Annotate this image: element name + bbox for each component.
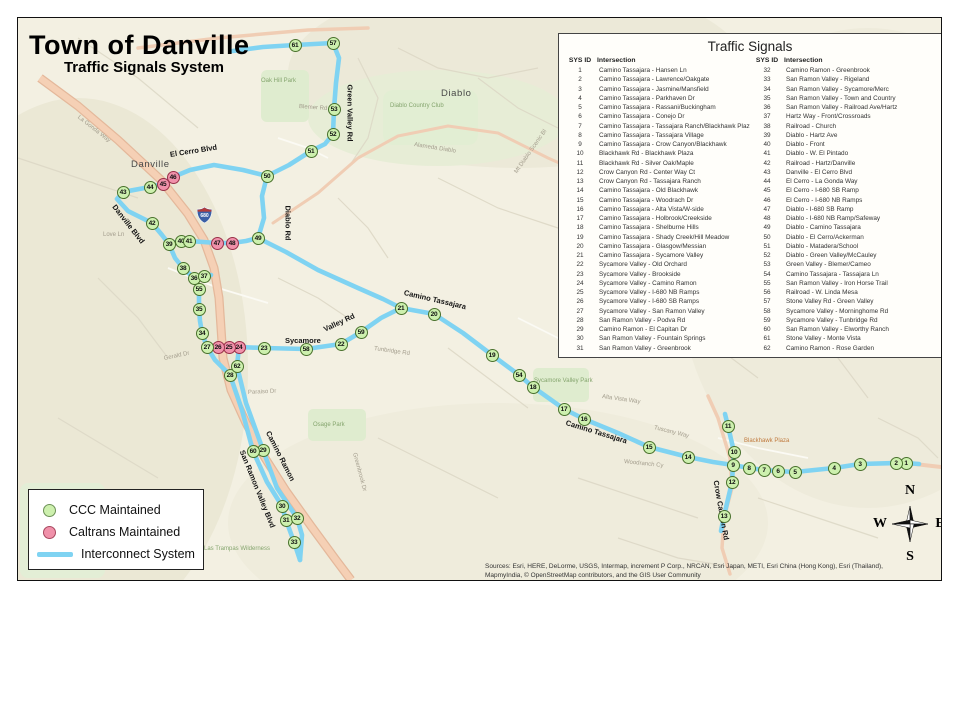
- signal-row: 18Camino Tassajara - Shelburne Hills: [563, 223, 750, 232]
- signal-id: 24: [563, 279, 597, 288]
- signal-id: 20: [563, 242, 597, 251]
- signal-id: 40: [750, 140, 784, 149]
- compass-star: [888, 500, 932, 548]
- signal-intersection: Railroad - Hartz/Danville: [784, 159, 937, 168]
- signal-id: 41: [750, 149, 784, 158]
- signal-id: 15: [563, 196, 597, 205]
- caltrans-marker-swatch: [43, 526, 56, 539]
- signal-row: 40Diablo - Front: [750, 140, 937, 149]
- signal-row: 50Diablo - El Cerro/Ackerman: [750, 233, 937, 242]
- signal-row: 62Camino Ramon - Rose Garden: [750, 344, 937, 353]
- signal-row: 2Camino Tassajara - Lawrence/Oakgate: [563, 75, 750, 84]
- poi-label: Blackhawk Plaza: [744, 438, 789, 444]
- signal-intersection: Camino Ramon - Rose Garden: [784, 344, 937, 353]
- signal-row: 20Camino Tassajara - Glasgow/Messian: [563, 242, 750, 251]
- signal-id: 5: [563, 103, 597, 112]
- signal-row: 25Sycamore Valley - I-680 NB Ramps: [563, 288, 750, 297]
- signal-intersection: Crow Canyon Rd - Tassajara Ranch: [597, 177, 750, 186]
- signal-id: 3: [563, 85, 597, 94]
- signal-row: 54Camino Tassajara - Tassajara Ln: [750, 270, 937, 279]
- legend-item-caltrans: Caltrans Maintained: [43, 521, 203, 543]
- signal-intersection: Hartz Way - Front/Crossroads: [784, 112, 937, 121]
- signal-id: 56: [750, 288, 784, 297]
- signal-intersection: Camino Tassajara - Conejo Dr: [597, 112, 750, 121]
- signal-id: 46: [750, 196, 784, 205]
- signal-id: 28: [563, 316, 597, 325]
- signal-id: 4: [563, 94, 597, 103]
- signal-marker-60[interactable]: 60: [247, 445, 260, 458]
- signal-row: 10Blackhawk Rd - Blackhawk Plaza: [563, 149, 750, 158]
- signal-marker-38[interactable]: 38: [177, 262, 190, 275]
- signal-row: 60San Ramon Valley - Elworthy Ranch: [750, 325, 937, 334]
- signal-intersection: Diablo - Camino Tassajara: [784, 223, 937, 232]
- signal-marker-53[interactable]: 53: [328, 103, 341, 116]
- signal-row: 38Railroad - Church: [750, 122, 937, 131]
- signal-intersection: Sycamore Valley - Tunbridge Rd: [784, 316, 937, 325]
- road-label: Love Ln: [103, 232, 124, 238]
- signal-row: 16Camino Tassajara - Alta Vista/W-side: [563, 205, 750, 214]
- signal-intersection: San Ramon Valley - Iron Horse Trail: [784, 279, 937, 288]
- signal-id: 43: [750, 168, 784, 177]
- signal-intersection: Diablo - Front: [784, 140, 937, 149]
- signal-marker-20[interactable]: 20: [428, 308, 441, 321]
- signal-row: 44El Cerro - La Gonda Way: [750, 177, 937, 186]
- signal-row: 24Sycamore Valley - Camino Ramon: [563, 279, 750, 288]
- signal-row: 45El Cerro - I-680 SB Ramp: [750, 186, 937, 195]
- signal-intersection: Camino Tassajara - Lawrence/Oakgate: [597, 75, 750, 84]
- signal-marker-14[interactable]: 14: [682, 451, 695, 464]
- signal-id: 12: [563, 168, 597, 177]
- signal-row: 5Camino Tassajara - Rassani/Buckingham: [563, 103, 750, 112]
- signal-id: 50: [750, 233, 784, 242]
- signal-intersection: Diablo - W. El Pintado: [784, 149, 937, 158]
- signal-intersection: Sycamore Valley - Brookside: [597, 270, 750, 279]
- signal-marker-8[interactable]: 8: [743, 462, 756, 475]
- signal-intersection: Camino Tassajara - Woodrach Dr: [597, 196, 750, 205]
- signals-panel-title: Traffic Signals: [563, 39, 937, 54]
- signal-row: 7Camino Tassajara - Tassajara Ranch/Blac…: [563, 122, 750, 131]
- signal-intersection: Camino Tassajara - Holbrook/Creekside: [597, 214, 750, 223]
- signal-id: 48: [750, 214, 784, 223]
- signal-row: 47Diablo - I-680 SB Ramp: [750, 205, 937, 214]
- signal-intersection: San Ramon Valley - Podva Rd: [597, 316, 750, 325]
- signal-marker-54[interactable]: 54: [513, 369, 526, 382]
- signal-intersection: Camino Tassajara - Jasmine/Mansfield: [597, 85, 750, 94]
- signal-id: 26: [563, 297, 597, 306]
- signal-row: 42Railroad - Hartz/Danville: [750, 159, 937, 168]
- signal-row: 14Camino Tassajara - Old Blackhawk: [563, 186, 750, 195]
- signal-marker-21[interactable]: 21: [395, 302, 408, 315]
- signal-intersection: San Ramon Valley - Town and Country: [784, 94, 937, 103]
- signal-intersection: San Ramon Valley - Greenbrook: [597, 344, 750, 353]
- signal-row: 43Danville - El Cerro Blvd: [750, 168, 937, 177]
- signal-intersection: Camino Tassajara - Tassajara Ranch/Black…: [597, 122, 750, 131]
- col-header-sysid: SYS ID: [563, 57, 597, 66]
- signal-intersection: Camino Tassajara - Tassajara Village: [597, 131, 750, 140]
- map-subtitle: Traffic Signals System: [29, 59, 259, 76]
- signal-id: 45: [750, 186, 784, 195]
- signal-marker-13[interactable]: 13: [718, 510, 731, 523]
- signal-intersection: San Ramon Valley - Elworthy Ranch: [784, 325, 937, 334]
- signal-marker-61[interactable]: 61: [289, 39, 302, 52]
- signal-marker-46[interactable]: 46: [167, 171, 180, 184]
- signal-id: 44: [750, 177, 784, 186]
- signal-row: 49Diablo - Camino Tassajara: [750, 223, 937, 232]
- signal-intersection: Blackhawk Rd - Blackhawk Plaza: [597, 149, 750, 158]
- col-header-intersection: Intersection: [597, 57, 750, 66]
- signal-id: 23: [563, 270, 597, 279]
- signal-marker-23[interactable]: 23: [258, 342, 271, 355]
- signal-id: 2: [563, 75, 597, 84]
- signal-row: 27Sycamore Valley - San Ramon Valley: [563, 307, 750, 316]
- signal-intersection: Diablo - Hartz Ave: [784, 131, 937, 140]
- legend-label: Interconnect System: [81, 547, 195, 561]
- signal-row: 22Sycamore Valley - Old Orchard: [563, 260, 750, 269]
- signal-marker-52[interactable]: 52: [327, 128, 340, 141]
- signal-marker-42[interactable]: 42: [146, 217, 159, 230]
- sources-line-1: Sources: Esri, HERE, DeLorme, USGS, Inte…: [485, 562, 935, 571]
- signal-id: 9: [563, 140, 597, 149]
- signal-id: 27: [563, 307, 597, 316]
- signal-intersection: Sycamore Valley - Morninghome Rd: [784, 307, 937, 316]
- signal-row: 56Railroad - W. Linda Mesa: [750, 288, 937, 297]
- signal-row: 4Camino Tassajara - Parkhaven Dr: [563, 94, 750, 103]
- signal-row: 57Stone Valley Rd - Green Valley: [750, 297, 937, 306]
- signal-intersection: Camino Tassajara - Alta Vista/W-side: [597, 205, 750, 214]
- signal-marker-44[interactable]: 44: [144, 181, 157, 194]
- signal-marker-41[interactable]: 41: [183, 235, 196, 248]
- signal-id: 13: [563, 177, 597, 186]
- sources-attribution: Sources: Esri, HERE, DeLorme, USGS, Inte…: [485, 562, 935, 580]
- signal-marker-50[interactable]: 50: [261, 170, 274, 183]
- signal-id: 39: [750, 131, 784, 140]
- map-canvas[interactable]: 680 DanvilleDiabloEl Cerro BlvdDanville …: [17, 17, 942, 581]
- signal-row: 34San Ramon Valley - Sycamore/Merc: [750, 85, 937, 94]
- park-label: Las Trampas Wilderness: [204, 546, 270, 552]
- signal-marker-34[interactable]: 34: [196, 327, 209, 340]
- legend-label: Caltrans Maintained: [69, 525, 180, 539]
- signal-marker-19[interactable]: 19: [486, 349, 499, 362]
- signal-intersection: Diablo - Matadera/School: [784, 242, 937, 251]
- signal-row: 29Camino Ramon - El Capitan Dr: [563, 325, 750, 334]
- signal-marker-48[interactable]: 48: [226, 237, 239, 250]
- signal-id: 38: [750, 122, 784, 131]
- signal-marker-35[interactable]: 35: [193, 303, 206, 316]
- signal-id: 47: [750, 205, 784, 214]
- signal-id: 10: [563, 149, 597, 158]
- signal-marker-27[interactable]: 27: [201, 341, 214, 354]
- signal-id: 55: [750, 279, 784, 288]
- map-title-block: Town of Danville Traffic Signals System: [29, 31, 259, 76]
- park-label: Oak Hill Park: [261, 78, 296, 84]
- signal-row: 35San Ramon Valley - Town and Country: [750, 94, 937, 103]
- signal-id: 33: [750, 75, 784, 84]
- compass-north: N: [905, 483, 915, 499]
- sources-line-2: MapmyIndia, © OpenStreetMap contributors…: [485, 571, 935, 580]
- signal-row: 9Camino Tassajara - Crow Canyon/Blackhaw…: [563, 140, 750, 149]
- signal-marker-22[interactable]: 22: [335, 338, 348, 351]
- compass-east: E: [935, 516, 942, 532]
- signal-row: 39Diablo - Hartz Ave: [750, 131, 937, 140]
- signal-intersection: Camino Tassajara - Shady Creek/Hill Mead…: [597, 233, 750, 242]
- signal-id: 11: [563, 159, 597, 168]
- signal-intersection: Camino Ramon - Greenbrook: [784, 66, 937, 75]
- road-label: Diablo Rd: [284, 206, 293, 241]
- signal-marker-51[interactable]: 51: [305, 145, 318, 158]
- signal-row: 11Blackhawk Rd - Silver Oak/Maple: [563, 159, 750, 168]
- signal-id: 17: [563, 214, 597, 223]
- signal-row: 8Camino Tassajara - Tassajara Village: [563, 131, 750, 140]
- signal-id: 14: [563, 186, 597, 195]
- signal-marker-59[interactable]: 59: [355, 326, 368, 339]
- ccc-marker-swatch: [43, 504, 56, 517]
- signal-intersection: El Cerro - I-680 NB Ramps: [784, 196, 937, 205]
- signal-intersection: Camino Tassajara - Hansen Ln: [597, 66, 750, 75]
- signal-marker-16[interactable]: 16: [578, 413, 591, 426]
- signal-row: 21Camino Tassajara - Sycamore Valley: [563, 251, 750, 260]
- legend-panel: CCC Maintained Caltrans Maintained Inter…: [28, 489, 204, 570]
- park-label: Osage Park: [313, 422, 345, 428]
- signal-row: 26Sycamore Valley - I-680 SB Ramps: [563, 297, 750, 306]
- signal-row: 46El Cerro - I-680 NB Ramps: [750, 196, 937, 205]
- signal-id: 29: [563, 325, 597, 334]
- signal-marker-3[interactable]: 3: [854, 458, 867, 471]
- signal-intersection: Camino Tassajara - Old Blackhawk: [597, 186, 750, 195]
- interconnect-line-swatch: [37, 552, 73, 557]
- signal-id: 49: [750, 223, 784, 232]
- signal-marker-49[interactable]: 49: [252, 232, 265, 245]
- signal-id: 7: [563, 122, 597, 131]
- signal-id: 57: [750, 297, 784, 306]
- signal-marker-30[interactable]: 30: [276, 500, 289, 513]
- signal-intersection: El Cerro - La Gonda Way: [784, 177, 937, 186]
- signal-row: 31San Ramon Valley - Greenbrook: [563, 344, 750, 353]
- signal-id: 19: [563, 233, 597, 242]
- signal-id: 59: [750, 316, 784, 325]
- signal-id: 61: [750, 334, 784, 343]
- shield-number: 680: [197, 213, 212, 219]
- signal-marker-9[interactable]: 9: [727, 459, 740, 472]
- signal-row: 61Stone Valley - Monte Vista: [750, 334, 937, 343]
- signal-intersection: Camino Ramon - El Capitan Dr: [597, 325, 750, 334]
- signal-row: 53Green Valley - Blemer/Cameo: [750, 260, 937, 269]
- signal-marker-4[interactable]: 4: [828, 462, 841, 475]
- signals-left: SYS ID Intersection 1Camino Tassajara - …: [563, 57, 750, 353]
- signal-marker-7[interactable]: 7: [758, 464, 771, 477]
- signal-row: 32Camino Ramon - Greenbrook: [750, 66, 937, 75]
- compass-west: W: [873, 516, 887, 532]
- signal-intersection: Diablo - El Cerro/Ackerman: [784, 233, 937, 242]
- signal-row: 3Camino Tassajara - Jasmine/Mansfield: [563, 85, 750, 94]
- legend-item-ccc: CCC Maintained: [43, 499, 203, 521]
- signal-row: 33San Ramon Valley - Rigeland: [750, 75, 937, 84]
- compass-rose: N S W E: [874, 483, 942, 565]
- signal-marker-5[interactable]: 5: [789, 466, 802, 479]
- signal-id: 31: [563, 344, 597, 353]
- col-header-intersection: Intersection: [784, 57, 937, 66]
- signal-intersection: Diablo - I-680 SB Ramp: [784, 205, 937, 214]
- signal-row: 12Crow Canyon Rd - Center Way Ct: [563, 168, 750, 177]
- signal-row: 17Camino Tassajara - Holbrook/Creekside: [563, 214, 750, 223]
- signal-row: 59Sycamore Valley - Tunbridge Rd: [750, 316, 937, 325]
- signal-id: 52: [750, 251, 784, 260]
- signal-row: 30San Ramon Valley - Fountain Springs: [563, 334, 750, 343]
- signal-marker-62[interactable]: 62: [231, 360, 244, 373]
- signal-marker-47[interactable]: 47: [211, 237, 224, 250]
- signal-marker-32[interactable]: 32: [291, 512, 304, 525]
- signal-id: 34: [750, 85, 784, 94]
- signal-id: 42: [750, 159, 784, 168]
- signal-marker-18[interactable]: 18: [527, 381, 540, 394]
- signal-row: 51Diablo - Matadera/School: [750, 242, 937, 251]
- signal-id: 25: [563, 288, 597, 297]
- signal-id: 60: [750, 325, 784, 334]
- signal-row: 19Camino Tassajara - Shady Creek/Hill Me…: [563, 233, 750, 242]
- signal-id: 53: [750, 260, 784, 269]
- signal-row: 58Sycamore Valley - Morninghome Rd: [750, 307, 937, 316]
- signal-intersection: Camino Tassajara - Tassajara Ln: [784, 270, 937, 279]
- signal-intersection: Diablo - Green Valley/McCauley: [784, 251, 937, 260]
- signal-id: 8: [563, 131, 597, 140]
- signal-intersection: Railroad - Church: [784, 122, 937, 131]
- signal-marker-58[interactable]: 58: [300, 343, 313, 356]
- signal-marker-10[interactable]: 10: [728, 446, 741, 459]
- signal-marker-37[interactable]: 37: [198, 270, 211, 283]
- signal-intersection: Sycamore Valley - San Ramon Valley: [597, 307, 750, 316]
- signal-row: 1Camino Tassajara - Hansen Ln: [563, 66, 750, 75]
- signal-intersection: San Ramon Valley - Sycamore/Merc: [784, 85, 937, 94]
- signal-row: 6Camino Tassajara - Conejo Dr: [563, 112, 750, 121]
- signal-marker-55[interactable]: 55: [193, 283, 206, 296]
- col-header-sysid: SYS ID: [750, 57, 784, 66]
- signal-intersection: Danville - El Cerro Blvd: [784, 168, 937, 177]
- signal-row: 36San Ramon Valley - Railroad Ave/Hartz: [750, 103, 937, 112]
- signal-row: 15Camino Tassajara - Woodrach Dr: [563, 196, 750, 205]
- signal-intersection: Sycamore Valley - I-680 NB Ramps: [597, 288, 750, 297]
- park-label: Sycamore Valley Park: [534, 378, 593, 384]
- signal-intersection: Diablo - I-680 NB Ramp/Safeway: [784, 214, 937, 223]
- town-label: Danville: [131, 159, 170, 170]
- signal-id: 6: [563, 112, 597, 121]
- signal-intersection: Stone Valley - Monte Vista: [784, 334, 937, 343]
- signal-intersection: San Ramon Valley - Rigeland: [784, 75, 937, 84]
- signal-marker-2[interactable]: 2: [890, 457, 903, 470]
- signal-marker-57[interactable]: 57: [327, 37, 340, 50]
- signal-id: 32: [750, 66, 784, 75]
- signal-row: 52Diablo - Green Valley/McCauley: [750, 251, 937, 260]
- signal-intersection: Camino Tassajara - Crow Canyon/Blackhawk: [597, 140, 750, 149]
- park-label: Diablo Country Club: [390, 103, 444, 109]
- signal-id: 1: [563, 66, 597, 75]
- signal-intersection: Blackhawk Rd - Silver Oak/Maple: [597, 159, 750, 168]
- signal-id: 51: [750, 242, 784, 251]
- signal-intersection: Camino Tassajara - Sycamore Valley: [597, 251, 750, 260]
- signal-row: 41Diablo - W. El Pintado: [750, 149, 937, 158]
- signal-id: 16: [563, 205, 597, 214]
- signal-row: 23Sycamore Valley - Brookside: [563, 270, 750, 279]
- signal-intersection: Camino Tassajara - Parkhaven Dr: [597, 94, 750, 103]
- signal-intersection: Camino Tassajara - Shelburne Hills: [597, 223, 750, 232]
- interstate-680-shield: 680: [197, 207, 212, 223]
- legend-label: CCC Maintained: [69, 503, 161, 517]
- signal-intersection: San Ramon Valley - Railroad Ave/Hartz: [784, 103, 937, 112]
- legend-item-interconnect: Interconnect System: [43, 543, 203, 565]
- signal-id: 35: [750, 94, 784, 103]
- signal-row: 13Crow Canyon Rd - Tassajara Ranch: [563, 177, 750, 186]
- signal-id: 22: [563, 260, 597, 269]
- traffic-signals-panel: Traffic Signals SYS ID Intersection 1Cam…: [558, 33, 942, 358]
- signal-marker-39[interactable]: 39: [163, 238, 176, 251]
- signal-id: 36: [750, 103, 784, 112]
- signal-marker-43[interactable]: 43: [117, 186, 130, 199]
- signal-intersection: Camino Tassajara - Rassani/Buckingham: [597, 103, 750, 112]
- signal-intersection: Green Valley - Blemer/Cameo: [784, 260, 937, 269]
- signal-row: 28San Ramon Valley - Podva Rd: [563, 316, 750, 325]
- signal-marker-12[interactable]: 12: [726, 476, 739, 489]
- signal-marker-15[interactable]: 15: [643, 441, 656, 454]
- map-title: Town of Danville: [29, 31, 259, 59]
- signal-intersection: Sycamore Valley - I-680 SB Ramps: [597, 297, 750, 306]
- signal-intersection: Railroad - W. Linda Mesa: [784, 288, 937, 297]
- signal-id: 54: [750, 270, 784, 279]
- signal-marker-17[interactable]: 17: [558, 403, 571, 416]
- signal-intersection: Stone Valley Rd - Green Valley: [784, 297, 937, 306]
- signal-id: 58: [750, 307, 784, 316]
- signal-id: 18: [563, 223, 597, 232]
- signals-right: SYS ID Intersection 32Camino Ramon - Gre…: [750, 57, 937, 353]
- signal-id: 37: [750, 112, 784, 121]
- signal-intersection: Sycamore Valley - Old Orchard: [597, 260, 750, 269]
- signal-marker-6[interactable]: 6: [772, 465, 785, 478]
- signal-row: 37Hartz Way - Front/Crossroads: [750, 112, 937, 121]
- signal-intersection: San Ramon Valley - Fountain Springs: [597, 334, 750, 343]
- signal-marker-33[interactable]: 33: [288, 536, 301, 549]
- signal-intersection: Sycamore Valley - Camino Ramon: [597, 279, 750, 288]
- signal-row: 55San Ramon Valley - Iron Horse Trail: [750, 279, 937, 288]
- signal-intersection: El Cerro - I-680 SB Ramp: [784, 186, 937, 195]
- signal-intersection: Crow Canyon Rd - Center Way Ct: [597, 168, 750, 177]
- signal-row: 48Diablo - I-680 NB Ramp/Safeway: [750, 214, 937, 223]
- signal-marker-11[interactable]: 11: [722, 420, 735, 433]
- signal-id: 62: [750, 344, 784, 353]
- town-label: Diablo: [441, 88, 472, 99]
- signal-id: 21: [563, 251, 597, 260]
- signal-intersection: Camino Tassajara - Glasgow/Messian: [597, 242, 750, 251]
- road-label: Green Valley Rd: [346, 85, 355, 142]
- signal-id: 30: [563, 334, 597, 343]
